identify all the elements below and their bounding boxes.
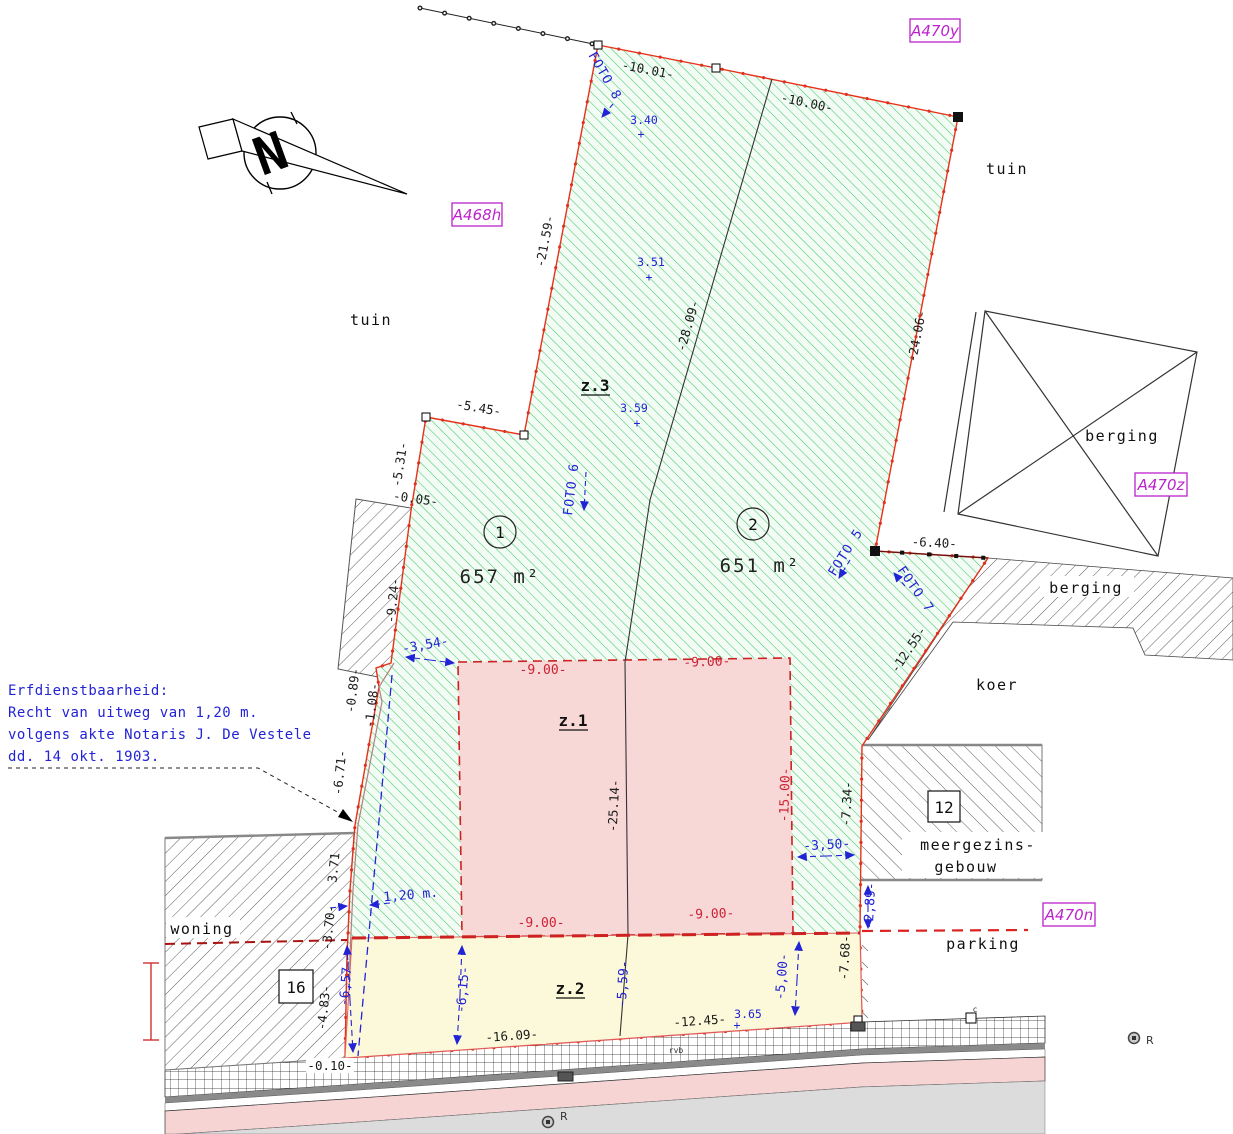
house-number-12: 12 <box>934 798 953 817</box>
tuin-right-label: tuin <box>986 160 1028 178</box>
elevation-label: 3.40 <box>630 113 658 127</box>
r-marker-label: R <box>1146 1034 1154 1047</box>
dim-350: -3,50- <box>803 837 851 854</box>
dim-2159: -21.59- <box>532 214 557 269</box>
c-mark-label: c <box>973 1005 978 1014</box>
servitude-line3: volgens akte Notaris J. De Vestele <box>8 727 312 743</box>
koer-label: koer <box>976 676 1018 694</box>
ref-a470n: A470n <box>1044 906 1093 924</box>
meergezins-label-2: gebouw <box>934 858 997 876</box>
marker-square-filled <box>870 546 880 556</box>
house-number-16: 16 <box>286 978 305 997</box>
dim-545: -5.45- <box>455 396 502 419</box>
dim-900-bl: -9.00- <box>518 916 565 931</box>
servitude-leader-line <box>8 768 350 819</box>
marker-square-open <box>422 413 430 421</box>
survey-plan-canvas: N Erfdienstbaarheid: Recht van uitweg va… <box>0 0 1233 1134</box>
utility-symbol <box>851 1022 865 1031</box>
parcel1-area: 657 m² <box>460 566 541 588</box>
marker-square-open <box>520 431 528 439</box>
dim-900-tr: -9.00- <box>683 654 730 671</box>
red-structure-left <box>143 963 159 1040</box>
woning-label: woning <box>170 920 233 938</box>
elevation-label: 3.59 <box>620 401 648 415</box>
berging-building-label: berging <box>1085 427 1159 445</box>
zone1-label: z.1 <box>559 711 588 730</box>
dim-900-br: -9.00- <box>687 906 734 923</box>
zone2-label: z.2 <box>556 979 585 998</box>
dim-734: -7.34- <box>838 781 855 827</box>
parcel2-number: 2 <box>748 515 758 534</box>
dim-768: -7.68- <box>836 935 853 981</box>
plus-mark-icon: + <box>646 270 653 284</box>
dim-289: -2,89- <box>862 882 879 930</box>
dim-559: -5,59- <box>615 960 632 1008</box>
servitude-line1: Erfdienstbaarheid: <box>8 683 169 699</box>
ref-a470y: A470y <box>910 22 960 40</box>
ref-a470z: A470z <box>1137 476 1186 494</box>
parcel1-number: 1 <box>495 523 505 542</box>
servitude-line4: dd. 14 okt. 1903. <box>8 749 160 765</box>
dim-531: -5.31- <box>389 441 411 488</box>
survey-plan: N Erfdienstbaarheid: Recht van uitweg va… <box>0 0 1233 1134</box>
dim-371: 3.71 <box>324 852 342 884</box>
r-marker-core <box>1132 1036 1136 1040</box>
dim-089: -0.89- <box>342 667 362 714</box>
dim-900-tl: -9.00- <box>520 663 567 678</box>
marker-square-open <box>594 41 602 49</box>
servitude-line2: Recht van uitweg van 1,20 m. <box>8 705 258 721</box>
fence-line <box>420 8 598 45</box>
dim-671: -6.71- <box>330 749 350 795</box>
zone3-label: z.3 <box>581 376 610 395</box>
parcel2-area: 651 m² <box>720 555 801 577</box>
marker-square-open <box>966 1013 976 1023</box>
r-marker-core <box>546 1120 550 1124</box>
servitude-note: Erfdienstbaarheid: Recht van uitweg van … <box>8 683 353 822</box>
r-marker-label: R <box>560 1110 568 1123</box>
dim-2514: -25.14- <box>605 779 623 832</box>
dim-1500: -15.00- <box>777 767 794 822</box>
east-boundary-ticks <box>862 945 868 1018</box>
plus-mark-icon: + <box>634 416 641 430</box>
utility-symbol <box>558 1072 573 1081</box>
servitude-leader-arrowhead <box>338 809 353 822</box>
plus-mark-icon: + <box>734 1018 741 1032</box>
dim-010: -0.10- <box>307 1058 352 1073</box>
meergezins-label-1: meergezins- <box>920 836 1036 854</box>
marker-square-filled <box>953 112 963 122</box>
tuin-left-label: tuin <box>350 311 392 329</box>
north-arrow: N <box>199 112 407 194</box>
elevation-label: 3.51 <box>637 255 665 269</box>
parking-label: parking <box>946 935 1020 953</box>
berging-strip-label: berging <box>1049 579 1123 597</box>
rvb-label: rvb <box>669 1046 684 1055</box>
ref-a468h: A468h <box>452 206 501 224</box>
dim-640: -6.40- <box>911 534 957 551</box>
red-dashed-parking <box>862 930 1028 931</box>
plus-mark-icon: + <box>638 127 645 141</box>
marker-square-open <box>712 64 720 72</box>
berging-x-building <box>944 311 1197 556</box>
